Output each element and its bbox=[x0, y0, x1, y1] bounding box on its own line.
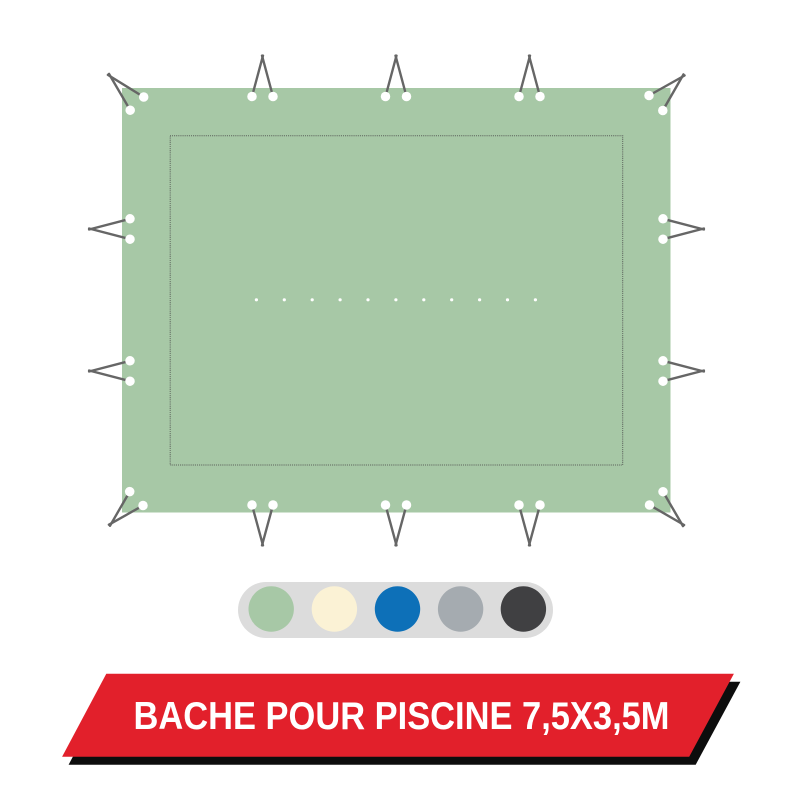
svg-text:BACHE POUR PISCINE 7,5X3,5M: BACHE POUR PISCINE 7,5X3,5M bbox=[134, 695, 670, 738]
